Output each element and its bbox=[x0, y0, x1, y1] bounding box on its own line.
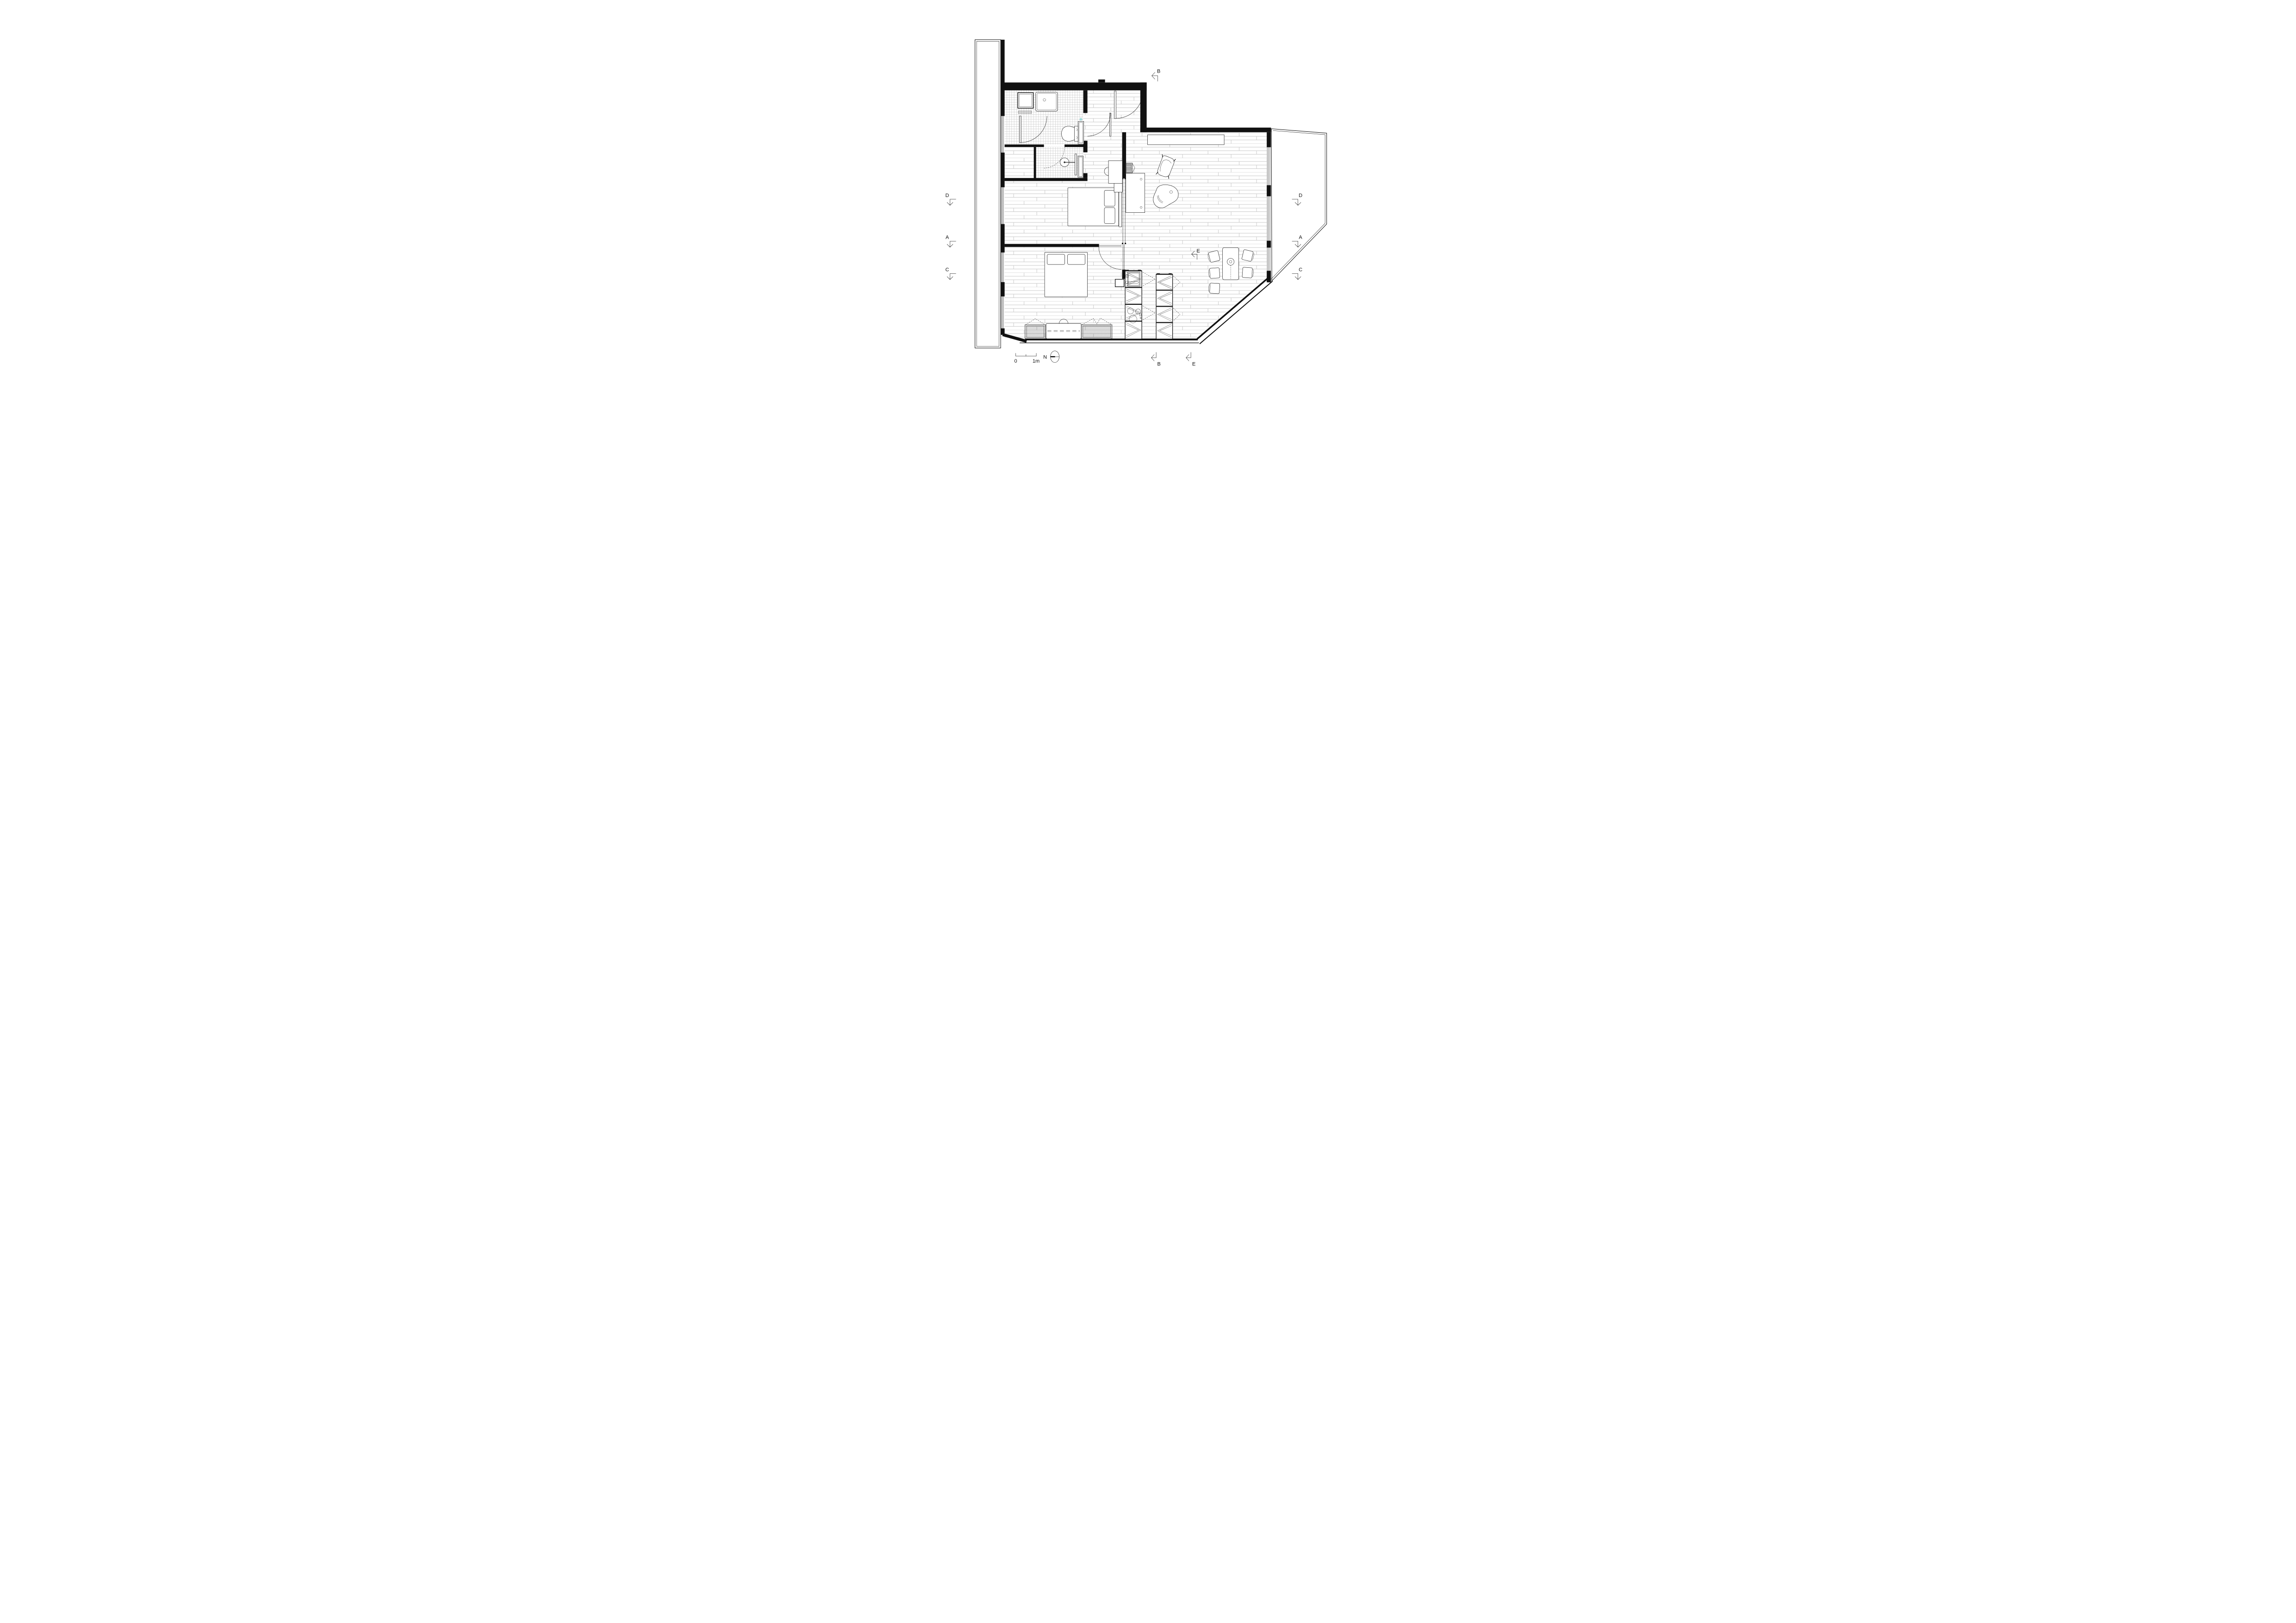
bathroom-bottom-wall bbox=[1005, 178, 1088, 181]
pillow bbox=[1047, 254, 1065, 265]
washing-machine bbox=[1018, 93, 1034, 108]
bath-door-leaf bbox=[1020, 116, 1021, 143]
section-label: C bbox=[1299, 267, 1302, 272]
section-label: B bbox=[1157, 361, 1160, 367]
entry-threshold bbox=[1098, 80, 1105, 83]
section-label: A bbox=[946, 235, 949, 240]
closet-block bbox=[1108, 160, 1122, 183]
north-label: N bbox=[1043, 354, 1047, 360]
toilet bbox=[1061, 126, 1078, 142]
dining-table bbox=[1223, 247, 1239, 280]
dining-chair bbox=[1208, 268, 1220, 279]
dining-chair bbox=[1242, 267, 1254, 278]
wc-mirror-cabinet bbox=[1078, 156, 1083, 177]
scale-zero-label: 0 bbox=[1015, 358, 1017, 364]
section-label: A bbox=[1299, 235, 1303, 240]
vanity-panel bbox=[1075, 154, 1077, 175]
closet-return bbox=[1114, 183, 1122, 192]
pillow bbox=[1104, 208, 1115, 224]
section-label: C bbox=[946, 267, 949, 272]
sideboard bbox=[1148, 135, 1225, 145]
entry-corner-wall bbox=[1140, 82, 1147, 132]
basin-drain bbox=[1064, 161, 1065, 163]
dining-chair bbox=[1208, 283, 1220, 294]
floor-grate bbox=[1018, 111, 1032, 114]
section-label: E bbox=[1192, 361, 1195, 367]
top-wall bbox=[1001, 82, 1147, 90]
floor-plan-sheet: B D A C D A C B bbox=[861, 0, 1435, 406]
shower-tray bbox=[1036, 92, 1058, 111]
scale-1m-label: 1m bbox=[1033, 358, 1040, 364]
section-label: D bbox=[946, 193, 949, 198]
section-label: D bbox=[1299, 193, 1302, 198]
pillow bbox=[1068, 254, 1085, 265]
floor-plan-drawing: B D A C D A C B bbox=[861, 0, 1435, 406]
section-label: E bbox=[1196, 248, 1200, 254]
entry-door-leaf bbox=[1114, 91, 1116, 119]
pillow bbox=[1104, 190, 1115, 206]
wall-niche bbox=[1115, 279, 1124, 287]
window-seat bbox=[1046, 323, 1081, 339]
headboard bbox=[1119, 187, 1122, 227]
section-label: B bbox=[1157, 68, 1160, 74]
north-pointer bbox=[1051, 356, 1055, 358]
living-top-wall bbox=[1140, 128, 1271, 132]
